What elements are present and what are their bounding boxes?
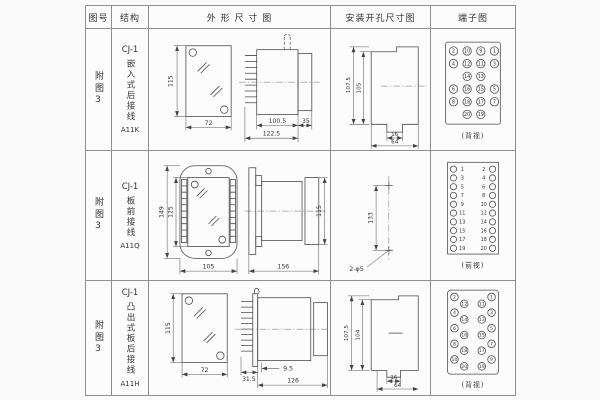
dim-label: 149 [158, 206, 165, 218]
structure-label: 板前接线 [124, 196, 136, 238]
terminal-number: 20 [461, 364, 467, 370]
dimensions [164, 165, 327, 273]
terminal-number: 15 [479, 333, 485, 339]
mounting-cell-a11k: 107.5 105 16 64 [331, 29, 431, 151]
fig-no-label: 附图3 [92, 71, 105, 108]
dim-label: 9.5 [283, 366, 293, 373]
terminal-number: 14 [464, 73, 470, 79]
terminal-number: 20 [464, 112, 470, 118]
terminal-number: 3 [461, 175, 464, 181]
col-header-terminal: 端子图 [431, 6, 515, 29]
terminal-number: 14 [461, 317, 467, 323]
terminal-cell-a11k: 2 10 9 1 4 12 11 3 14 13 6 16 15 5 8 18 … [431, 29, 515, 151]
structure-a11h: CJ-1 凸出式板后接线 A11H [112, 281, 149, 395]
dimensions [170, 294, 327, 388]
col-header-outline: 外 形 尺 寸 图 [149, 6, 331, 29]
dim-label: 64 [394, 383, 402, 389]
col-header-terminal-label: 端子图 [458, 11, 488, 24]
cutout-outline [371, 296, 418, 377]
terminal-number: 5 [461, 184, 464, 190]
terminal-number: 12 [481, 210, 487, 216]
dim-label: 156 [277, 263, 289, 270]
col-header-structure: 结构 [112, 6, 149, 29]
dim-label: 72 [200, 367, 208, 374]
terminal-number: 13 [479, 317, 485, 323]
terminal-number: 6 [453, 326, 456, 332]
terminal-number: 16 [464, 86, 470, 92]
terminal-number: 7 [461, 193, 464, 199]
terminal-number: 11 [459, 210, 465, 216]
terminal-number: 17 [479, 348, 485, 354]
structure-a11k: CJ-1 嵌入式后接线 A11K [112, 29, 149, 151]
mounting-drawing-a11k: 107.5 105 16 64 [332, 30, 430, 150]
terminal-block [448, 162, 499, 254]
dimensions [349, 46, 418, 148]
dim-label: 122.5 [262, 130, 280, 137]
outline-drawing-a11h: 115 72 31.5 9.5 126 [150, 282, 330, 394]
terminal-number: 10 [481, 201, 487, 207]
terminal-number: 3 [490, 310, 493, 316]
terminal-number: 18 [481, 237, 487, 243]
dim-label: 107.5 [344, 325, 350, 342]
model-label: A11H [121, 380, 140, 388]
terminal-number: 16 [461, 333, 467, 339]
terminal-diagram-a11q: 1 2 3 4 5 6 7 8 9 10 11 12 13 14 15 16 1… [432, 152, 514, 280]
structure-label: 凸出式板后接线 [124, 302, 136, 376]
terminal-cell-a11q: 1 2 3 4 5 6 7 8 9 10 11 12 13 14 15 16 1… [431, 151, 515, 281]
dim-label: 31.5 [242, 376, 256, 383]
terminal-number: 20 [481, 245, 487, 251]
cutout-outline [371, 46, 418, 131]
series-label: CJ-1 [122, 45, 139, 55]
terminal-number: 8 [453, 341, 456, 347]
terminal-number: 9 [461, 201, 464, 207]
terminal-diagram-a11h: 2 4 6 8 10 12 14 16 18 20 11 13 15 17 19… [432, 282, 514, 394]
terminal-circles [449, 46, 498, 118]
terminal-number: 7 [490, 341, 493, 347]
terminal-number: 6 [482, 184, 485, 190]
terminal-number: 2 [453, 295, 456, 301]
dimensions [347, 296, 418, 392]
terminal-number: 3 [493, 61, 496, 67]
terminal-number: 5 [493, 86, 496, 92]
terminal-number: 4 [453, 310, 456, 316]
dim-label: 105 [356, 82, 362, 93]
terminal-number: 2 [482, 166, 485, 172]
terminal-number: 18 [461, 348, 467, 354]
model-label: A11K [121, 126, 139, 134]
front-view [179, 165, 236, 258]
dim-label: 104 [355, 329, 361, 340]
terminal-number: 13 [478, 73, 484, 79]
col-header-fig-no-label: 图号 [88, 11, 108, 24]
terminal-number: 9 [490, 357, 493, 363]
terminal-number: 11 [479, 301, 485, 307]
terminal-number: 5 [490, 326, 493, 332]
structure-a11q: CJ-1 板前接线 A11Q [112, 151, 149, 281]
terminal-number: 1 [461, 166, 464, 172]
col-header-mounting-label: 安装开孔尺寸图 [345, 11, 415, 24]
terminal-number: 19 [478, 112, 484, 118]
manual-page: 图号 结构 外 形 尺 寸 图 安装开孔尺寸图 端子图 附图3 CJ-1 嵌入式… [0, 0, 600, 400]
terminal-number: 17 [459, 237, 465, 243]
dim-label: 105 [202, 263, 214, 270]
fig-no-a11h: 附图3 [86, 281, 112, 395]
terminal-number: 1 [493, 48, 496, 54]
dim-label: 126 [287, 378, 299, 385]
outline-cell-a11k: 115 72 100.5 35 122.5 [149, 29, 331, 151]
dim-label: 16 [391, 131, 399, 137]
outline-drawing-a11k: 115 72 100.5 35 122.5 [150, 30, 330, 150]
terminal-number: 12 [464, 61, 470, 67]
terminal-number: 11 [478, 61, 484, 67]
mounting-drawing-a11h: 107.5 104 16 64 [332, 282, 430, 394]
outline-cell-a11q: 149 125 105 156 115 [149, 151, 331, 281]
terminal-number: 14 [481, 219, 487, 225]
mounting-cell-a11q: 133 2-φ5 [331, 151, 431, 281]
view-label: (背视) [462, 130, 485, 139]
col-header-mounting: 安装开孔尺寸图 [331, 6, 431, 29]
terminal-number: 7 [493, 99, 496, 105]
outline-drawing-a11q: 149 125 105 156 115 [150, 152, 330, 280]
series-label: CJ-1 [122, 288, 139, 298]
terminal-number: 6 [452, 86, 455, 92]
terminal-diagram-a11k: 2 10 9 1 4 12 11 3 14 13 6 16 15 5 8 18 … [432, 30, 514, 150]
view-label: (背视) [462, 380, 485, 389]
series-label: CJ-1 [122, 182, 139, 192]
terminal-number: 4 [482, 175, 485, 181]
hole-callout: 2-φ5 [349, 264, 364, 272]
terminal-number: 1 [490, 295, 493, 301]
outline-cell-a11h: 115 72 31.5 9.5 126 [149, 281, 331, 395]
dim-label: 35 [302, 117, 310, 124]
terminal-cell-a11h: 2 4 6 8 10 12 14 16 18 20 11 13 15 17 19… [431, 281, 515, 395]
fig-no-a11k: 附图3 [86, 29, 112, 151]
fig-no-label: 附图3 [92, 197, 105, 234]
side-view [240, 288, 326, 366]
dimensions [367, 185, 389, 266]
fig-no-label: 附图3 [92, 320, 105, 357]
fig-no-a11q: 附图3 [86, 151, 112, 281]
terminal-number: 18 [464, 99, 470, 105]
terminal-number: 2 [452, 48, 455, 54]
dim-label: 115 [316, 205, 323, 217]
terminal-circles [450, 166, 495, 251]
terminal-number: 10 [464, 48, 470, 54]
terminal-number: 9 [479, 48, 482, 54]
col-header-fig-no: 图号 [86, 6, 112, 29]
front-view [185, 45, 230, 116]
mounting-drawing-a11q: 133 2-φ5 [332, 152, 430, 280]
col-header-outline-label: 外 形 尺 寸 图 [207, 11, 272, 24]
dim-label: 115 [164, 322, 171, 334]
terminal-number: 13 [459, 219, 465, 225]
dimension-table: 图号 结构 外 形 尺 寸 图 安装开孔尺寸图 端子图 附图3 CJ-1 嵌入式… [85, 5, 516, 396]
terminal-number: 15 [478, 86, 484, 92]
front-view [182, 294, 227, 363]
dashed-handle [284, 33, 290, 49]
dim-label: 125 [167, 206, 174, 218]
dim-label: 115 [167, 75, 174, 87]
view-label: (前视) [462, 260, 485, 269]
terminal-number: 8 [482, 193, 485, 199]
terminal-number: 8 [452, 99, 455, 105]
model-label: A11Q [120, 242, 139, 250]
terminal-number: 16 [481, 228, 487, 234]
dim-label: 107.5 [346, 76, 352, 93]
terminal-number: 17 [478, 99, 484, 105]
dimensions [174, 45, 312, 141]
terminal-number: 19 [479, 364, 485, 370]
dim-label: 100.5 [268, 117, 286, 124]
terminal-number: 10 [451, 357, 457, 363]
terminal-number: 4 [452, 61, 455, 67]
dim-label: 64 [391, 139, 399, 145]
col-header-structure-label: 结构 [120, 11, 140, 24]
mounting-cell-a11h: 107.5 104 16 64 [331, 281, 431, 395]
terminal-number: 12 [461, 301, 467, 307]
terminal-number: 15 [459, 228, 465, 234]
dim-label: 72 [204, 119, 212, 126]
terminal-number: 19 [459, 245, 465, 251]
dim-label: 133 [367, 212, 374, 224]
structure-label: 嵌入式后接线 [124, 59, 136, 122]
dim-label: 16 [390, 375, 397, 381]
